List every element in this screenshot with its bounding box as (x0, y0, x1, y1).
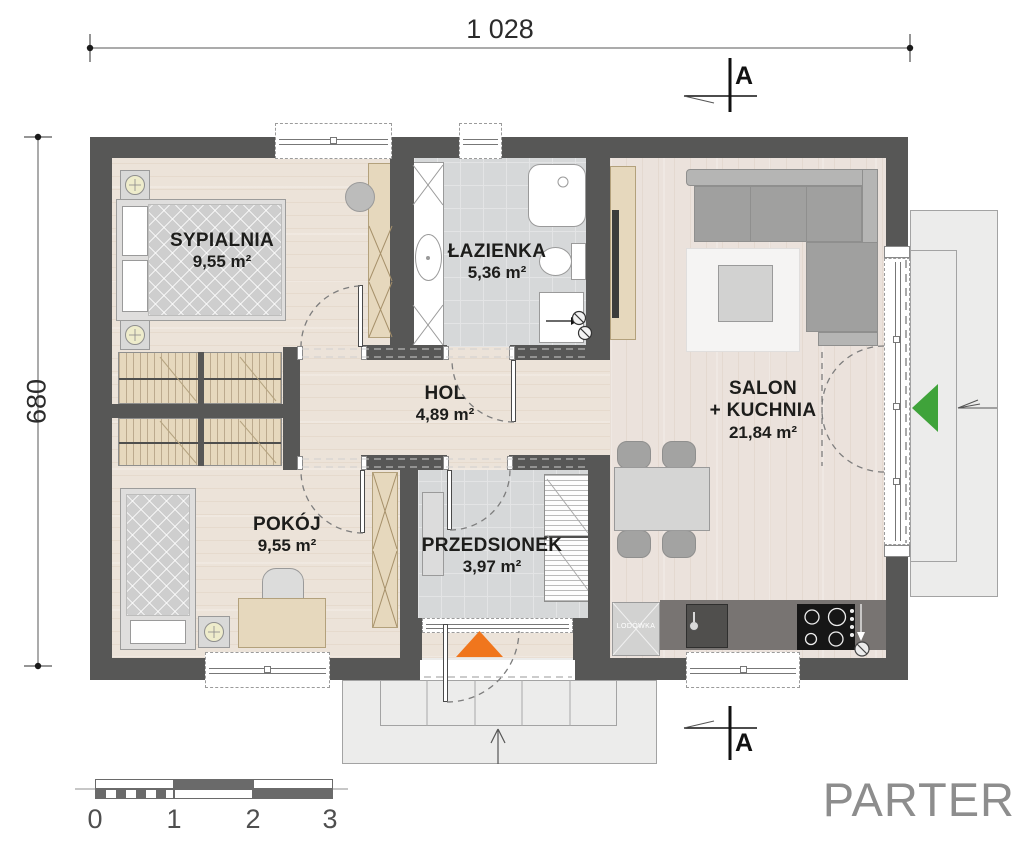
sofa-seat-divider (806, 187, 807, 241)
single-bed-mattress (126, 494, 190, 616)
scale-bar-segment (253, 789, 333, 799)
door-mullion (893, 336, 900, 343)
window-mullion (740, 666, 747, 673)
scale-tick-label: 0 (82, 804, 108, 835)
terrace-inner-edge (910, 250, 957, 562)
exterior-wall-right (886, 137, 908, 258)
door-mullion (893, 478, 900, 485)
bedroom-door-leaf (358, 285, 363, 347)
wall-bathroom-salon (586, 137, 610, 347)
room-name: PRZEDSIONEK (402, 535, 582, 557)
window-glazing (895, 262, 901, 541)
room-name: SYPIALNIA (132, 230, 312, 252)
desk (238, 598, 326, 648)
scale-bar-segment (253, 779, 333, 789)
door-mullion (893, 403, 900, 410)
sofa-chaise (806, 242, 878, 332)
room-label-pokoj: POKÓJ 9,55 m² (197, 514, 377, 556)
scale-tick-label: 3 (317, 804, 343, 835)
room-name: ŁAZIENKA (407, 241, 587, 263)
dimension-left-label: 680 (22, 357, 53, 447)
section-label-top: A (735, 62, 753, 91)
dining-table (614, 467, 710, 531)
coffee-table (718, 265, 773, 322)
przedsionek-door-leaf (447, 470, 452, 530)
sofa-back (686, 169, 878, 186)
floor-plan-canvas: LODÓWKA (0, 0, 1024, 858)
scale-bar-segment (95, 779, 174, 789)
room-label-sypialnia: SYPIALNIA 9,55 m² (132, 230, 312, 272)
fridge-label: LODÓWKA (612, 623, 660, 630)
room-area: 9,55 m² (197, 536, 377, 556)
lamp-icon (204, 622, 224, 642)
room-name-line2: + KUCHNIA (673, 400, 853, 422)
closet-divider-wall (198, 352, 204, 404)
dining-chair (617, 530, 651, 558)
floor-name-label: PARTER (790, 772, 1015, 827)
window-mullion (264, 666, 271, 673)
plant-icon (345, 182, 375, 212)
room-name: SALON (673, 378, 853, 400)
sofa-chaise-end (818, 332, 878, 346)
door-jamb (361, 346, 367, 360)
room-label-salon: SALON + KUCHNIA 21,84 m² (673, 378, 853, 443)
washing-machine (539, 292, 584, 343)
door-jamb (507, 456, 513, 470)
hol-north-wall (361, 345, 447, 360)
room-area: 4,89 m² (355, 405, 535, 425)
door-jamb (297, 456, 303, 470)
dining-chair (662, 530, 696, 558)
room-area: 9,55 m² (132, 252, 312, 272)
tv-icon (612, 210, 619, 318)
exterior-wall-right (886, 545, 908, 680)
sofa-seats (694, 186, 862, 242)
entry-porch-step (380, 680, 617, 726)
door-jamb (884, 246, 910, 258)
section-label-bottom: A (735, 729, 753, 758)
dining-chair (617, 441, 651, 469)
room-area: 3,97 m² (402, 557, 582, 577)
scale-tick-label: 1 (161, 804, 187, 835)
sofa-seat-divider (750, 187, 751, 241)
room-area: 5,36 m² (407, 263, 587, 283)
door-jamb (297, 346, 303, 360)
bed-pillow (130, 620, 186, 644)
door-jamb (443, 346, 449, 360)
window-mullion (330, 137, 337, 144)
lamp-icon (125, 175, 145, 195)
closet-divider-wall (198, 418, 204, 466)
room-area: 21,84 m² (673, 423, 853, 443)
room-name: HOL (355, 383, 535, 405)
shower (528, 164, 586, 227)
scale-tick-label: 2 (240, 804, 266, 835)
room-name: POKÓJ (197, 514, 377, 536)
dimension-top-label: 1 028 (455, 14, 545, 45)
wall-przedsionek-salon (588, 458, 610, 658)
door-jamb (361, 456, 367, 470)
room-label-hol: HOL 4,89 m² (355, 383, 535, 425)
cooktop (797, 604, 855, 650)
scale-bar-segment (174, 779, 253, 789)
terrace-glass-door (884, 258, 910, 545)
door-jamb (443, 456, 449, 470)
room-label-przedsionek: PRZEDSIONEK 3,97 m² (402, 535, 582, 577)
window-glazing (463, 139, 498, 145)
kitchen-sink (686, 604, 728, 648)
room-label-lazienka: ŁAZIENKA 5,36 m² (407, 241, 587, 283)
bathroom-window (459, 123, 502, 159)
sofa-right-back (862, 169, 878, 245)
hol-north-wall (510, 345, 610, 360)
scale-bar-segment (174, 789, 253, 799)
lamp-icon (125, 325, 145, 345)
wall-bedroom-pokoj (95, 404, 300, 418)
door-jamb (884, 545, 910, 557)
entry-door-leaf (443, 624, 448, 702)
door-jamb (509, 346, 515, 360)
dining-chair (662, 441, 696, 469)
scale-bar-segment-checkered (95, 789, 174, 799)
